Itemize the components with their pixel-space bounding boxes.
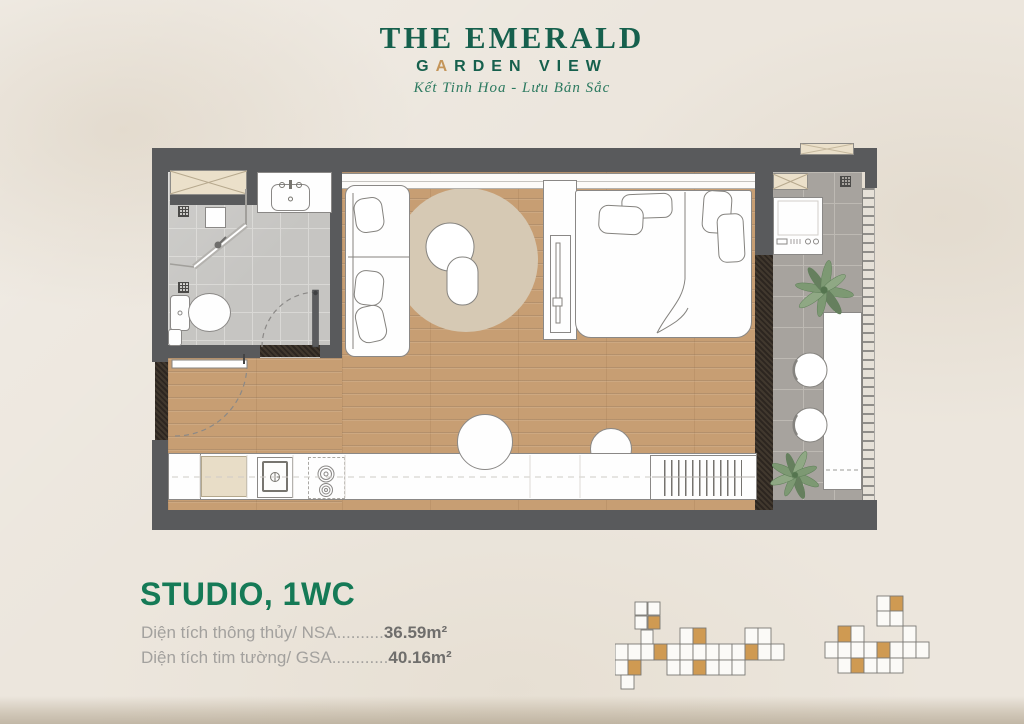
balcony-bar-counter	[823, 312, 862, 490]
wall-top-right	[865, 148, 877, 188]
area-value: 40.16m²	[388, 648, 451, 667]
bathroom-bin	[168, 329, 182, 346]
kitchen-sink	[262, 461, 288, 492]
dining-table	[457, 414, 513, 470]
area-row-gsa: Diện tích tim tường/ GSA............40.1…	[141, 645, 452, 670]
bottom-shadow	[0, 696, 1024, 724]
area-label: Diện tích tim tường/ GSA	[141, 648, 332, 667]
laundry-alcove-box	[170, 170, 247, 195]
dots-leader: ..........	[337, 623, 384, 642]
keyplan-locator	[615, 590, 935, 695]
floor-drain-icon	[178, 282, 189, 293]
washing-machine	[773, 197, 823, 255]
keyplan-left-tower	[615, 602, 784, 689]
wall-alcove-stub	[247, 170, 257, 205]
area-info: Diện tích thông thủy/ NSA..........36.59…	[141, 620, 452, 670]
round-rug	[394, 188, 538, 332]
ac-ledge-box	[800, 143, 854, 155]
keyplan-right-tower	[825, 596, 929, 673]
louver-slats	[664, 460, 742, 496]
gold-a-glyph: A	[436, 58, 455, 75]
wall-left-upper	[152, 148, 168, 362]
floor-drain-icon	[178, 206, 189, 217]
tv-console-panel	[550, 235, 571, 333]
area-row-nsa: Diện tích thông thủy/ NSA..........36.59…	[141, 620, 452, 645]
brand-garden-view: GARDEN VIEW	[0, 58, 1024, 76]
fridge	[168, 453, 201, 500]
balcony-shaft-box	[773, 173, 808, 190]
balcony-railing	[862, 188, 875, 510]
dots-leader: ............	[332, 648, 389, 667]
brand-tagline: Kết Tinh Hoa - Lưu Bản Sắc	[0, 80, 1024, 97]
balcony-drain-icon	[840, 176, 851, 187]
vanity-basin	[271, 184, 310, 211]
area-value: 36.59m²	[384, 623, 447, 642]
bed	[575, 190, 752, 338]
bathroom-threshold	[260, 345, 320, 357]
floor-plan	[152, 143, 877, 530]
stove-zone	[308, 457, 345, 499]
brand-garden-view-post: RDEN VIEW	[454, 58, 608, 75]
brand-garden-view-pre: G	[416, 58, 435, 75]
wall-bottom	[152, 510, 877, 530]
toilet-bowl	[188, 293, 231, 332]
brand-title: THE EMERALD	[0, 20, 1024, 56]
wall-bathroom-bottom	[152, 345, 260, 358]
sofa	[345, 185, 410, 357]
area-label: Diện tích thông thủy/ NSA	[141, 623, 337, 642]
wall-bathroom-door-stub	[320, 345, 342, 358]
shower-mixer-box	[205, 207, 226, 228]
wall-alcove	[170, 195, 255, 205]
wall-balcony-pillar	[755, 155, 773, 255]
kitchen-cabinet	[201, 456, 247, 497]
wall-balcony-bottom	[772, 500, 877, 512]
toilet-tank	[170, 295, 190, 331]
brand-logo: THE EMERALD GARDEN VIEW Kết Tinh Hoa - L…	[0, 20, 1024, 97]
entry-threshold	[155, 362, 168, 440]
unit-type-title: STUDIO, 1WC	[140, 576, 355, 613]
sliding-window-frame	[755, 255, 773, 510]
